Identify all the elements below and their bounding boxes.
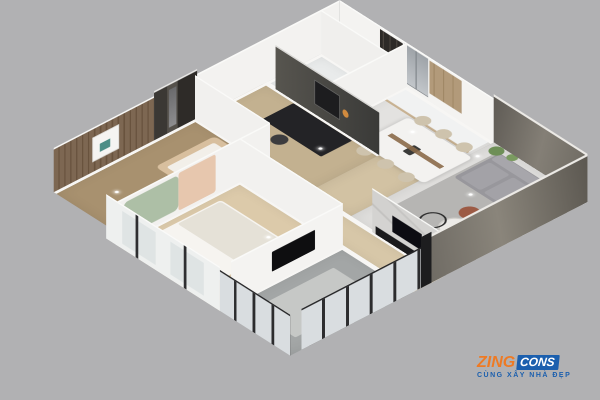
corner-post [421,232,431,288]
bedroom-tv [272,230,315,272]
floorplan [43,44,588,355]
window-frame [136,215,139,259]
wardrobe-mirror [169,86,176,128]
logo-tagline: CÙNG XÂY NHÀ ĐẸP [477,372,587,379]
isometric-scene [0,0,600,400]
refrigerator-door-line [415,51,416,90]
apartment-render-image: ZING CONS CÙNG XÂY NHÀ ĐẸP [0,0,600,400]
study-art-frame [314,79,339,120]
zingcons-watermark: ZING CONS CÙNG XÂY NHÀ ĐẸP [477,355,587,379]
window-frame [184,245,187,289]
logo-wordmark: ZING CONS [477,355,587,370]
study-art-circle [342,108,348,119]
logo-text-cons: CONS [516,355,559,370]
logo-text-zing: ZING [477,356,515,370]
